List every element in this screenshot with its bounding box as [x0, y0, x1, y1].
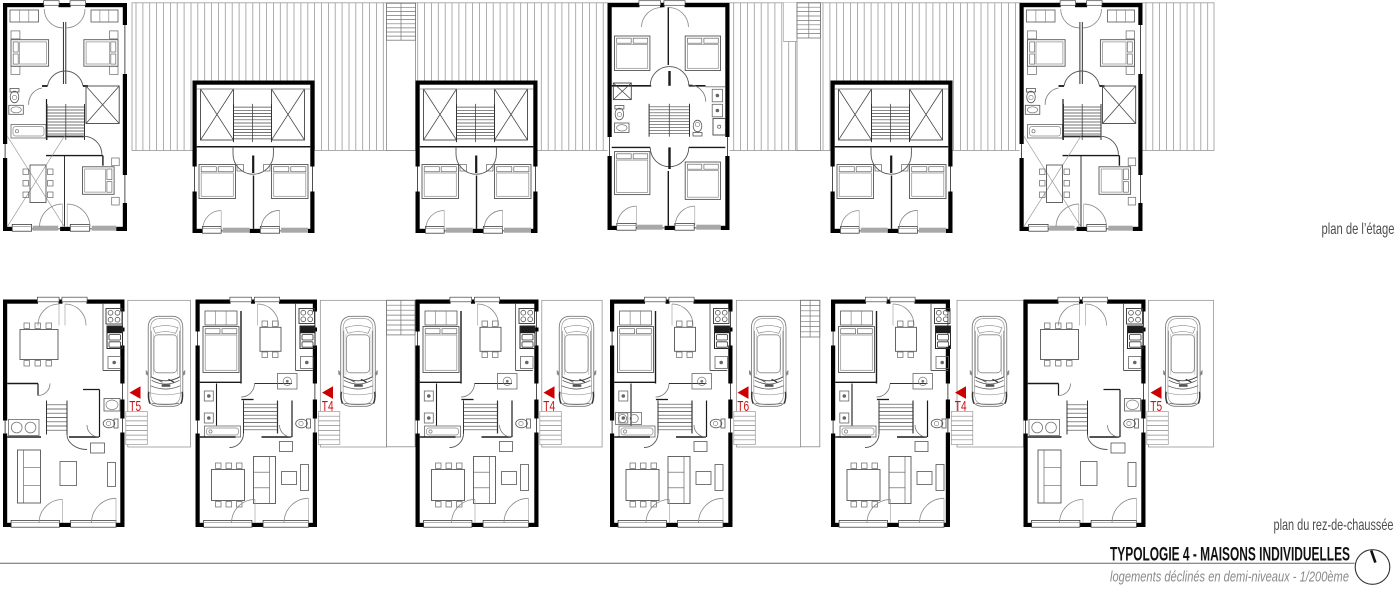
svg-text:TYPOLOGIE 4 - MAISONS INDIVIDU: TYPOLOGIE 4 - MAISONS INDIVIDUELLES: [1110, 544, 1350, 566]
svg-text:plan de l’étage: plan de l’étage: [1322, 221, 1395, 238]
svg-text:plan du rez-de-chaussée: plan du rez-de-chaussée: [1274, 517, 1394, 534]
svg-text:logements déclinés en demi-niv: logements déclinés en demi-niveaux - 1/2…: [1110, 570, 1349, 586]
